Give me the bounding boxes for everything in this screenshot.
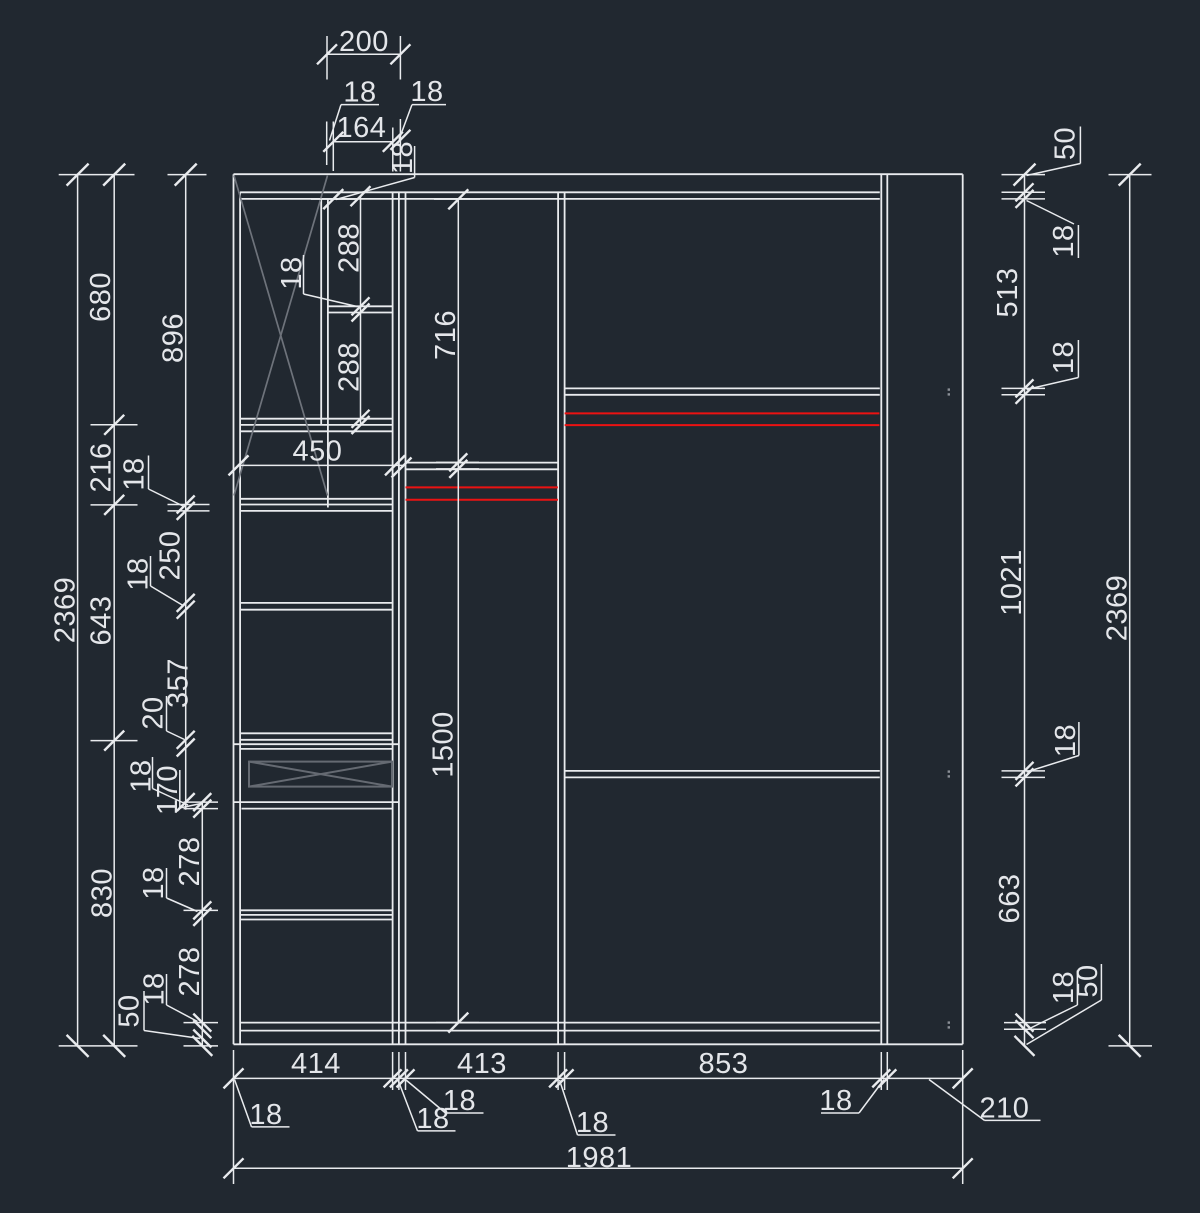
svg-text:18: 18 [1048, 224, 1080, 257]
svg-text:413: 413 [457, 1048, 507, 1080]
svg-text:216: 216 [86, 443, 118, 493]
svg-text:1021: 1021 [996, 549, 1028, 616]
svg-text:50: 50 [114, 994, 146, 1027]
svg-text:643: 643 [86, 596, 118, 646]
svg-text:716: 716 [430, 310, 462, 360]
svg-text:830: 830 [87, 868, 119, 918]
svg-text:18: 18 [119, 457, 151, 490]
svg-text:414: 414 [291, 1048, 341, 1080]
svg-text:18: 18 [123, 557, 155, 590]
svg-text:200: 200 [339, 26, 389, 58]
svg-text:288: 288 [334, 223, 366, 273]
svg-text:680: 680 [85, 272, 117, 322]
svg-text:278: 278 [174, 837, 206, 887]
svg-text:18: 18 [138, 866, 170, 899]
svg-text:18: 18 [1048, 341, 1080, 374]
svg-text:1500: 1500 [428, 711, 460, 778]
svg-text:250: 250 [155, 531, 187, 581]
svg-text:18: 18 [343, 77, 376, 109]
svg-text:18: 18 [576, 1107, 609, 1139]
svg-text:18: 18 [410, 76, 443, 108]
svg-text:18: 18 [1050, 724, 1082, 757]
svg-text:450: 450 [293, 436, 343, 468]
svg-text:2369: 2369 [50, 577, 82, 644]
svg-text:288: 288 [334, 342, 366, 392]
svg-text:50: 50 [1050, 127, 1082, 160]
svg-text:164: 164 [337, 112, 387, 144]
svg-text:1981: 1981 [566, 1142, 633, 1174]
svg-text:2369: 2369 [1102, 575, 1134, 642]
svg-text:20: 20 [138, 696, 170, 729]
svg-text:18: 18 [819, 1085, 852, 1117]
svg-text:663: 663 [994, 874, 1026, 924]
svg-text:278: 278 [174, 947, 206, 997]
svg-text:18: 18 [443, 1085, 476, 1117]
svg-text:50: 50 [1072, 964, 1104, 997]
svg-text:513: 513 [992, 268, 1024, 318]
svg-text:896: 896 [158, 313, 190, 363]
svg-text:853: 853 [699, 1048, 749, 1080]
